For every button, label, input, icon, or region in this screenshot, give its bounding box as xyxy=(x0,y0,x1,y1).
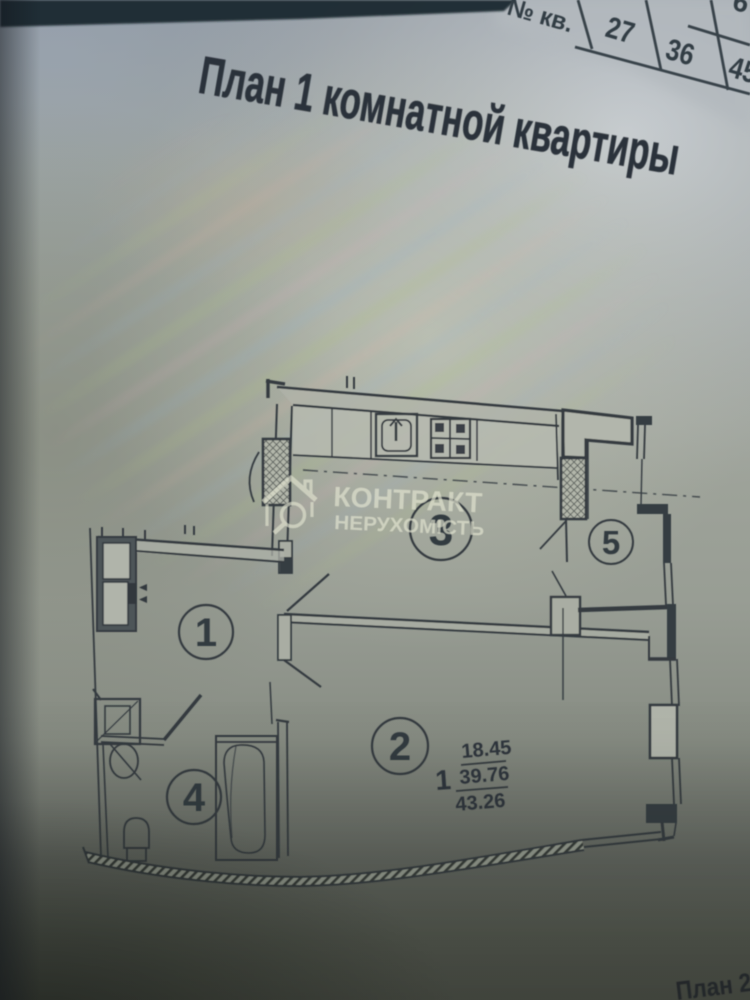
svg-text:5: 5 xyxy=(602,524,620,561)
svg-text:1: 1 xyxy=(195,611,217,655)
